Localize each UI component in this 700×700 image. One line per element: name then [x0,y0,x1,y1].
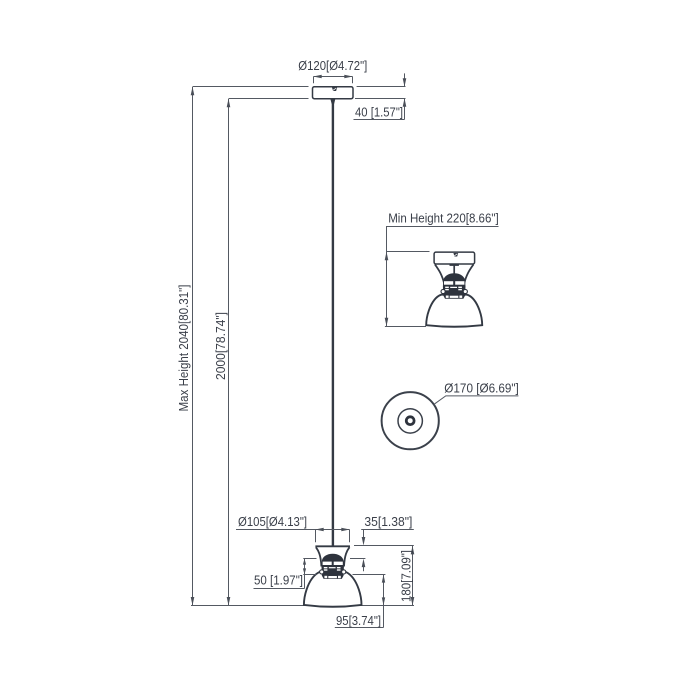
svg-text:95[3.74"]: 95[3.74"] [336,613,381,628]
svg-text:180[7.09"]: 180[7.09"] [398,550,413,602]
svg-text:40 [1.57"]: 40 [1.57"] [355,104,403,119]
svg-text:2000[78.74"]: 2000[78.74"] [213,312,228,380]
svg-text:50 [1.97"]: 50 [1.97"] [254,573,303,588]
svg-text:Min Height 220[8.66"]: Min Height 220[8.66"] [388,210,499,225]
svg-text:Ø170 [Ø6.69"]: Ø170 [Ø6.69"] [444,381,519,396]
svg-text:Max Height 2040[80.31"]: Max Height 2040[80.31"] [176,285,191,412]
svg-text:Ø105[Ø4.13"]: Ø105[Ø4.13"] [238,514,307,529]
svg-text:Ø120[Ø4.72"]: Ø120[Ø4.72"] [298,58,367,73]
svg-text:35[1.38"]: 35[1.38"] [364,514,412,529]
